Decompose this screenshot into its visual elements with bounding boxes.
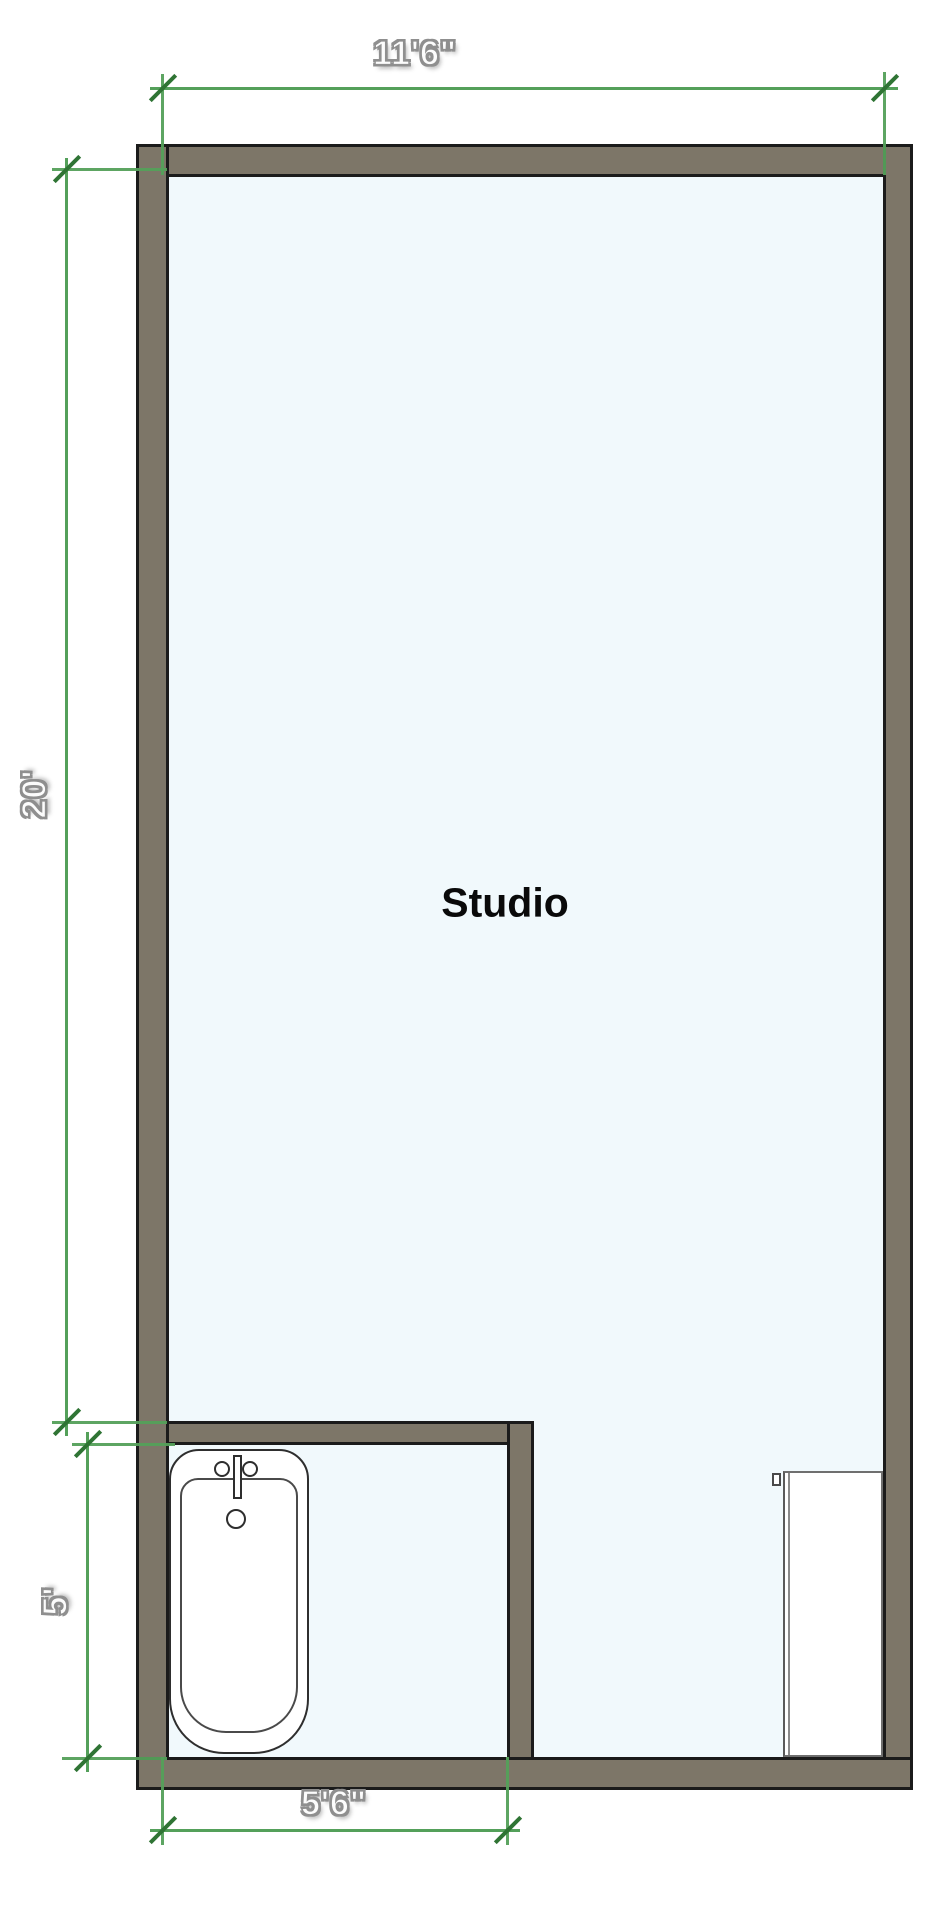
wall-right bbox=[883, 144, 913, 1790]
dim-left-label: 20' bbox=[16, 770, 55, 819]
dim-left-line bbox=[65, 158, 68, 1436]
bathroom-partition-horizontal bbox=[166, 1421, 534, 1445]
faucet-handle-left bbox=[214, 1461, 230, 1477]
door-hinge-mark bbox=[772, 1473, 781, 1486]
dim-bath-left-line bbox=[86, 1432, 89, 1772]
room-name-label: Studio bbox=[441, 880, 569, 927]
wall-top bbox=[136, 144, 913, 177]
bathroom-partition-vertical bbox=[507, 1421, 534, 1760]
dim-bath-left-extension-bottom bbox=[62, 1757, 167, 1760]
dim-bath-left-label: 5' bbox=[37, 1587, 76, 1616]
wall-bottom bbox=[136, 1757, 913, 1790]
wall-left bbox=[136, 144, 169, 1790]
dim-top-line bbox=[150, 87, 898, 90]
floor-plan: 11'6" 20' 5' 5'6" Studio bbox=[0, 0, 930, 1920]
faucet-spout bbox=[233, 1455, 242, 1499]
dim-top-label: 11'6" bbox=[373, 35, 457, 74]
dim-bath-bottom-line bbox=[150, 1829, 520, 1832]
door-panel bbox=[783, 1471, 883, 1757]
dim-bath-bottom-label: 5'6" bbox=[301, 1785, 367, 1824]
door-panel-edge-line bbox=[788, 1473, 790, 1755]
faucet-handle-right bbox=[242, 1461, 258, 1477]
bathtub-drain bbox=[226, 1509, 246, 1529]
